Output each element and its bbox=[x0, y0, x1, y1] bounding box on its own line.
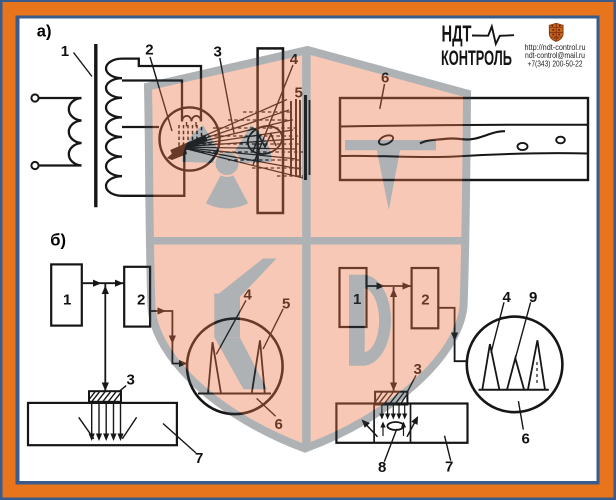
svg-text:7: 7 bbox=[445, 459, 453, 476]
svg-text:НДТ: НДТ bbox=[442, 21, 472, 47]
svg-text:КОНТРОЛЬ: КОНТРОЛЬ bbox=[441, 46, 512, 70]
svg-text:1: 1 bbox=[63, 291, 71, 308]
svg-text:а): а) bbox=[37, 23, 52, 41]
svg-text:2: 2 bbox=[145, 42, 153, 59]
svg-text:3: 3 bbox=[214, 44, 222, 61]
svg-text:1: 1 bbox=[61, 43, 69, 60]
svg-text:6: 6 bbox=[522, 431, 530, 448]
svg-text:3: 3 bbox=[127, 372, 135, 389]
svg-text:+7(343) 200-50-22: +7(343) 200-50-22 bbox=[528, 58, 583, 68]
svg-text:2: 2 bbox=[137, 291, 145, 308]
svg-text:б): б) bbox=[50, 231, 66, 249]
